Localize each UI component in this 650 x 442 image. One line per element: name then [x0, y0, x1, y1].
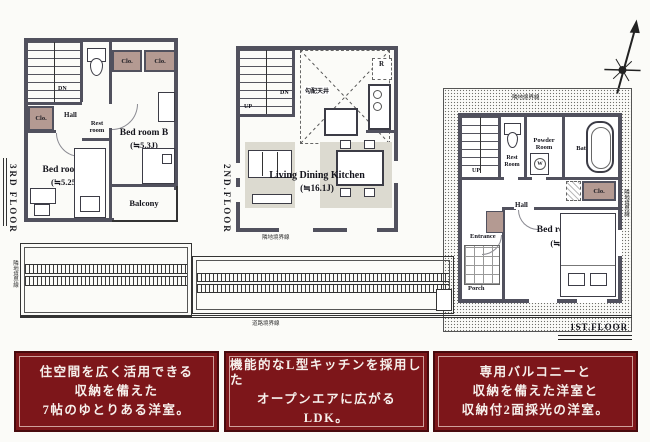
- restroom-1f-label: Rest Room: [498, 155, 526, 168]
- stair-stringer: [480, 117, 481, 173]
- wall: [366, 130, 394, 133]
- dimension-line: [3, 158, 4, 226]
- hall-1f-label: Hall: [514, 201, 529, 209]
- door-arc: [112, 104, 138, 130]
- site-1f: 隣地境界線 隣地境界線 UP Re: [443, 88, 632, 332]
- road-edge-line: [20, 315, 632, 318]
- balcony-rail: [176, 186, 178, 222]
- ldk-size: (≒16.1J): [236, 183, 398, 194]
- road-boundary-label: 道路境界線: [252, 319, 280, 327]
- caption-line: 収納を備えた: [74, 384, 158, 399]
- sink-icon: [373, 90, 382, 99]
- stair-stringer: [266, 50, 267, 114]
- caption-line: オープンエアに広がる: [257, 392, 396, 407]
- wall: [498, 117, 501, 179]
- caption-box-1-frame: 住空間を広く活用できる 収納を備えた 7帖のゆとりある洋室。: [19, 356, 214, 427]
- desk-icon: [30, 188, 56, 204]
- closet-3f-1: Clo.: [112, 50, 142, 72]
- floor-label-2f: 2ND.FLOOR: [222, 164, 232, 234]
- door-gap: [532, 177, 546, 180]
- washer-drum-icon: W: [534, 158, 546, 170]
- chair-icon: [34, 204, 50, 216]
- window: [618, 229, 622, 257]
- wall: [110, 184, 178, 187]
- caption-line: 専用バルコニーと: [480, 365, 592, 380]
- window: [278, 228, 314, 232]
- chair-icon: [364, 140, 375, 149]
- driveway-hatch-band: [25, 276, 187, 286]
- boundary-label-strip-top: 隣地境界線: [262, 233, 290, 241]
- toilet-icon: [90, 58, 103, 76]
- bed-blanket-line: [561, 265, 615, 266]
- caption-box-3-frame: 専用バルコニーと 収納を備えた洋室と 収納付2面採光の洋室。: [438, 356, 633, 427]
- stairs-dn-label: DN: [280, 90, 289, 96]
- stair-stringer: [54, 42, 55, 102]
- driveway-right: [192, 256, 454, 314]
- caption-line: LDK。: [304, 411, 350, 426]
- caption-line: 住空間を広く活用できる: [40, 365, 194, 380]
- caption-line: 機能的なL型キッチンを採用した: [230, 358, 423, 388]
- caption-box-2-frame: 機能的なL型キッチンを採用した オープンエアに広がる LDK。: [229, 356, 424, 427]
- sloped-ceiling-label: 勾配天井: [304, 86, 330, 95]
- pillow-icon: [162, 154, 172, 164]
- window: [576, 299, 608, 303]
- powder-room-label: Powder Room: [526, 137, 562, 152]
- closet-3f-2: Clo.: [144, 50, 176, 72]
- window: [236, 186, 240, 203]
- caption-line: 収納を備えた洋室と: [472, 384, 598, 399]
- balcony-rail: [112, 220, 178, 222]
- balcony-label: Balcony: [112, 198, 176, 208]
- window: [346, 228, 378, 232]
- closet-3f-3: Clo.: [28, 106, 54, 131]
- hall-3f-label: Hall: [64, 111, 77, 119]
- pipe-space: [566, 181, 581, 201]
- bedroom-b-name: Bed room B: [110, 128, 178, 138]
- porch-tiles: [464, 245, 500, 285]
- stairs-dn-label: DN: [58, 86, 67, 92]
- caption-line: 7帖のゆとりある洋室。: [43, 403, 191, 418]
- pillow-icon: [80, 196, 100, 212]
- boundary-label-strip-left: 隣地境界線: [11, 260, 19, 288]
- wall: [292, 50, 295, 117]
- stairs-up-label: UP: [472, 168, 480, 174]
- floor-label-1f: 1ST.FLOOR: [570, 322, 628, 332]
- wall: [82, 138, 112, 141]
- window: [236, 162, 240, 179]
- floorplan-3f: DN Rest room Clo. Clo. Clo. Hall Bed roo…: [24, 38, 182, 228]
- caption-box-1: 住空間を広く活用できる 収納を備えた 7帖のゆとりある洋室。: [14, 351, 219, 432]
- wall: [394, 46, 398, 232]
- counter-icon: [324, 108, 358, 136]
- chair-icon: [340, 140, 351, 149]
- utility-box: [436, 289, 452, 311]
- driveway-left: [20, 243, 192, 317]
- pillow-icon: [568, 273, 585, 286]
- floor-label-3f: 3RD FLOOR: [8, 164, 18, 234]
- floorplan-2f: DN UP 勾配天井 R Living Dining Kit: [236, 46, 398, 232]
- window: [394, 160, 398, 184]
- building-1f: UP Rest Room Powder Room W Bath Room Hal…: [458, 113, 622, 303]
- wall: [28, 102, 82, 105]
- boundary-label-top: 隣地境界線: [512, 93, 540, 101]
- floor-plan-flyer: DN Rest room Clo. Clo. Clo. Hall Bed roo…: [0, 0, 650, 442]
- wall: [80, 42, 83, 102]
- stove-icon: [373, 102, 382, 111]
- driveway-hatch-band: [197, 273, 449, 282]
- driveway-hatch-band: [25, 264, 187, 274]
- porch-label: Porch: [467, 285, 486, 292]
- closet-1f: Clo.: [582, 181, 616, 201]
- caption-box-3: 専用バルコニーと 収納を備えた洋室と 収納付2面採光の洋室。: [433, 351, 638, 432]
- bathtub-inner: [591, 127, 611, 169]
- fridge-label: R: [379, 60, 384, 68]
- window: [528, 299, 558, 303]
- tv-board-icon: [252, 194, 292, 204]
- restroom-3f-label: Rest room: [81, 120, 113, 134]
- wall: [24, 218, 114, 222]
- dimension-line: [6, 158, 7, 226]
- pillow-icon: [590, 273, 607, 286]
- desk-icon: [158, 92, 175, 122]
- toilet-icon: [507, 132, 518, 148]
- entrance-step: [486, 211, 504, 233]
- boundary-label-right: 隣地境界線: [622, 189, 630, 217]
- floor-label-underline: [558, 335, 632, 340]
- ldk-name: Living Dining Kitchen: [236, 170, 398, 181]
- door-gap: [504, 177, 518, 180]
- stairs-up-label: UP: [244, 104, 252, 110]
- wall: [240, 114, 295, 117]
- caption-line: 収納付2面採光の洋室。: [462, 403, 610, 418]
- driveway-hatch-band: [197, 284, 449, 293]
- caption-box-2: 機能的なL型キッチンを採用した オープンエアに広がる LDK。: [224, 351, 429, 432]
